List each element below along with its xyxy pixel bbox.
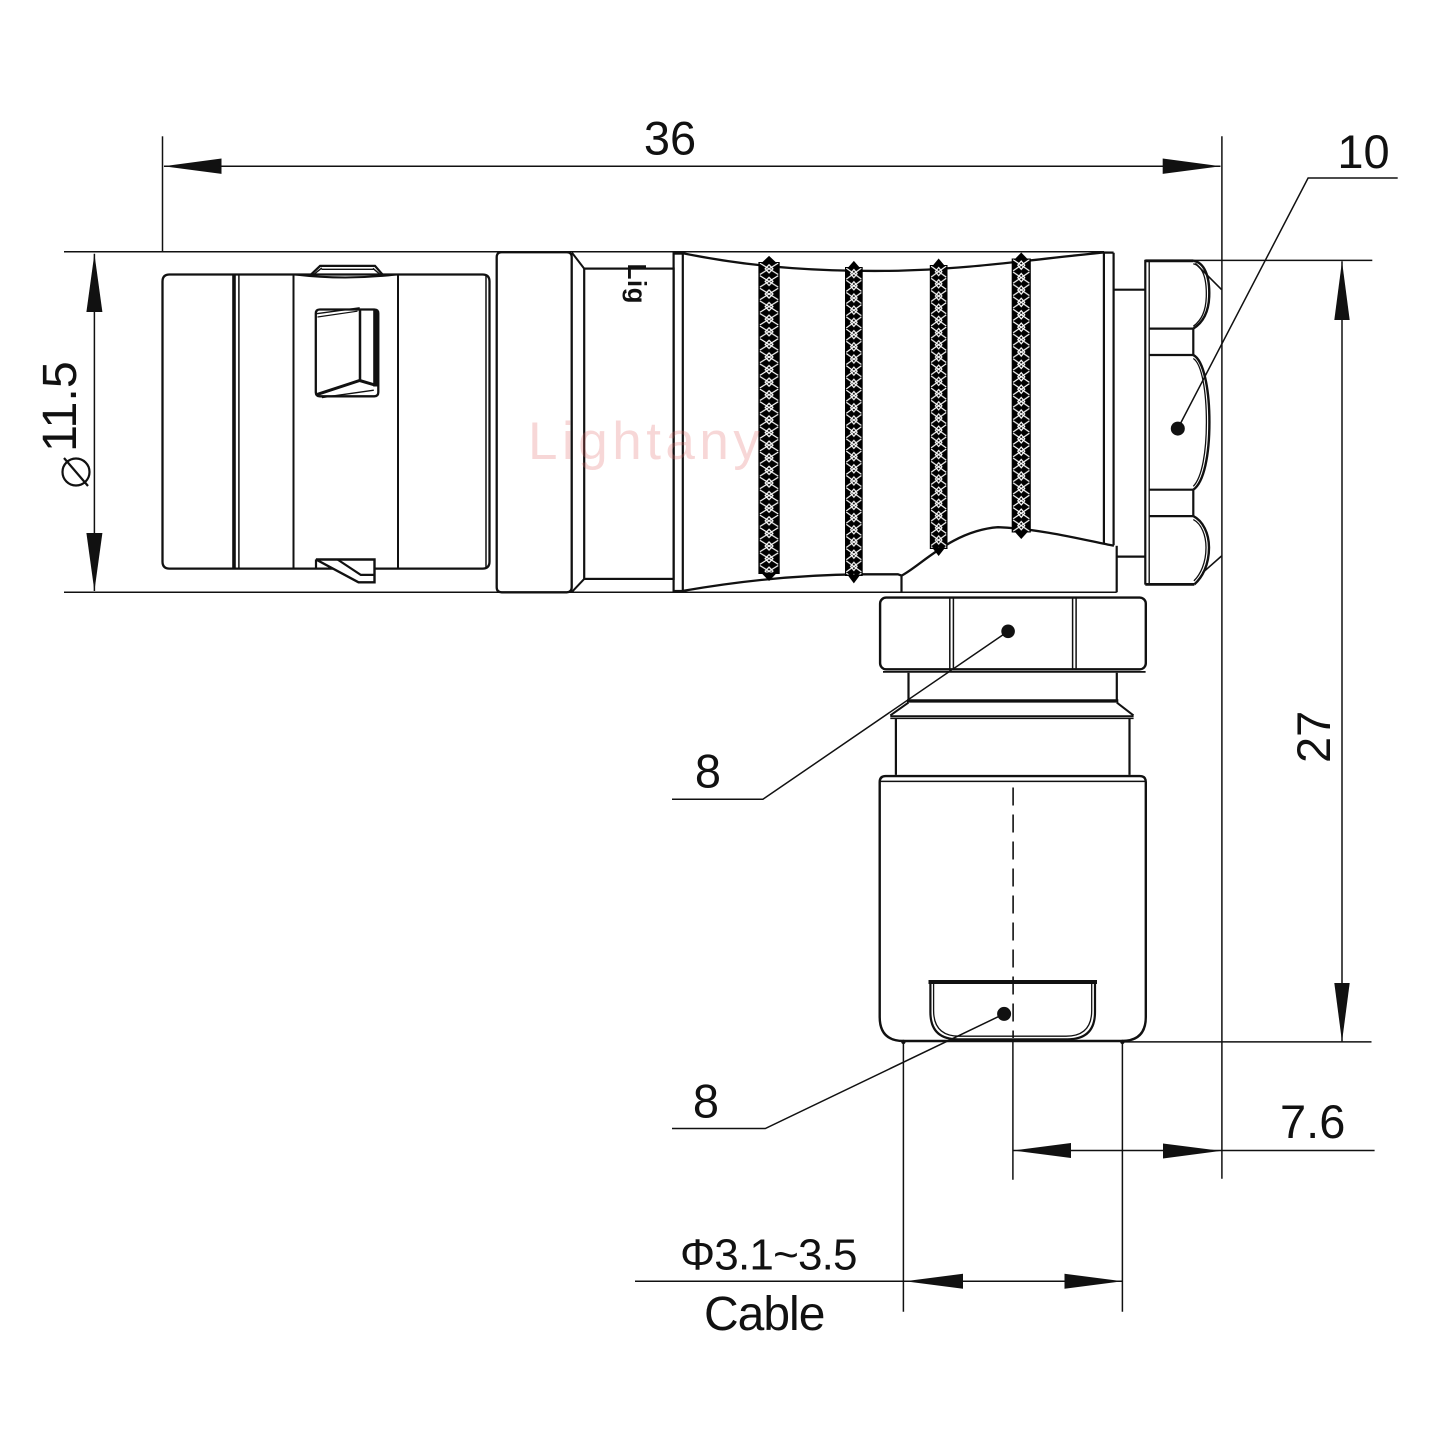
svg-text:Lig: Lig [622,264,652,305]
svg-text:Lightany: Lightany [528,412,764,471]
svg-text:36: 36 [644,112,696,165]
svg-text:Cable: Cable [704,1288,824,1341]
svg-text:8: 8 [695,745,721,798]
svg-text:11.5: 11.5 [33,361,87,452]
svg-text:7.6: 7.6 [1280,1095,1345,1148]
svg-text:27: 27 [1287,711,1340,763]
svg-text:10: 10 [1337,125,1389,178]
svg-text:Φ3.1~3.5: Φ3.1~3.5 [680,1231,857,1280]
svg-text:8: 8 [693,1075,719,1128]
